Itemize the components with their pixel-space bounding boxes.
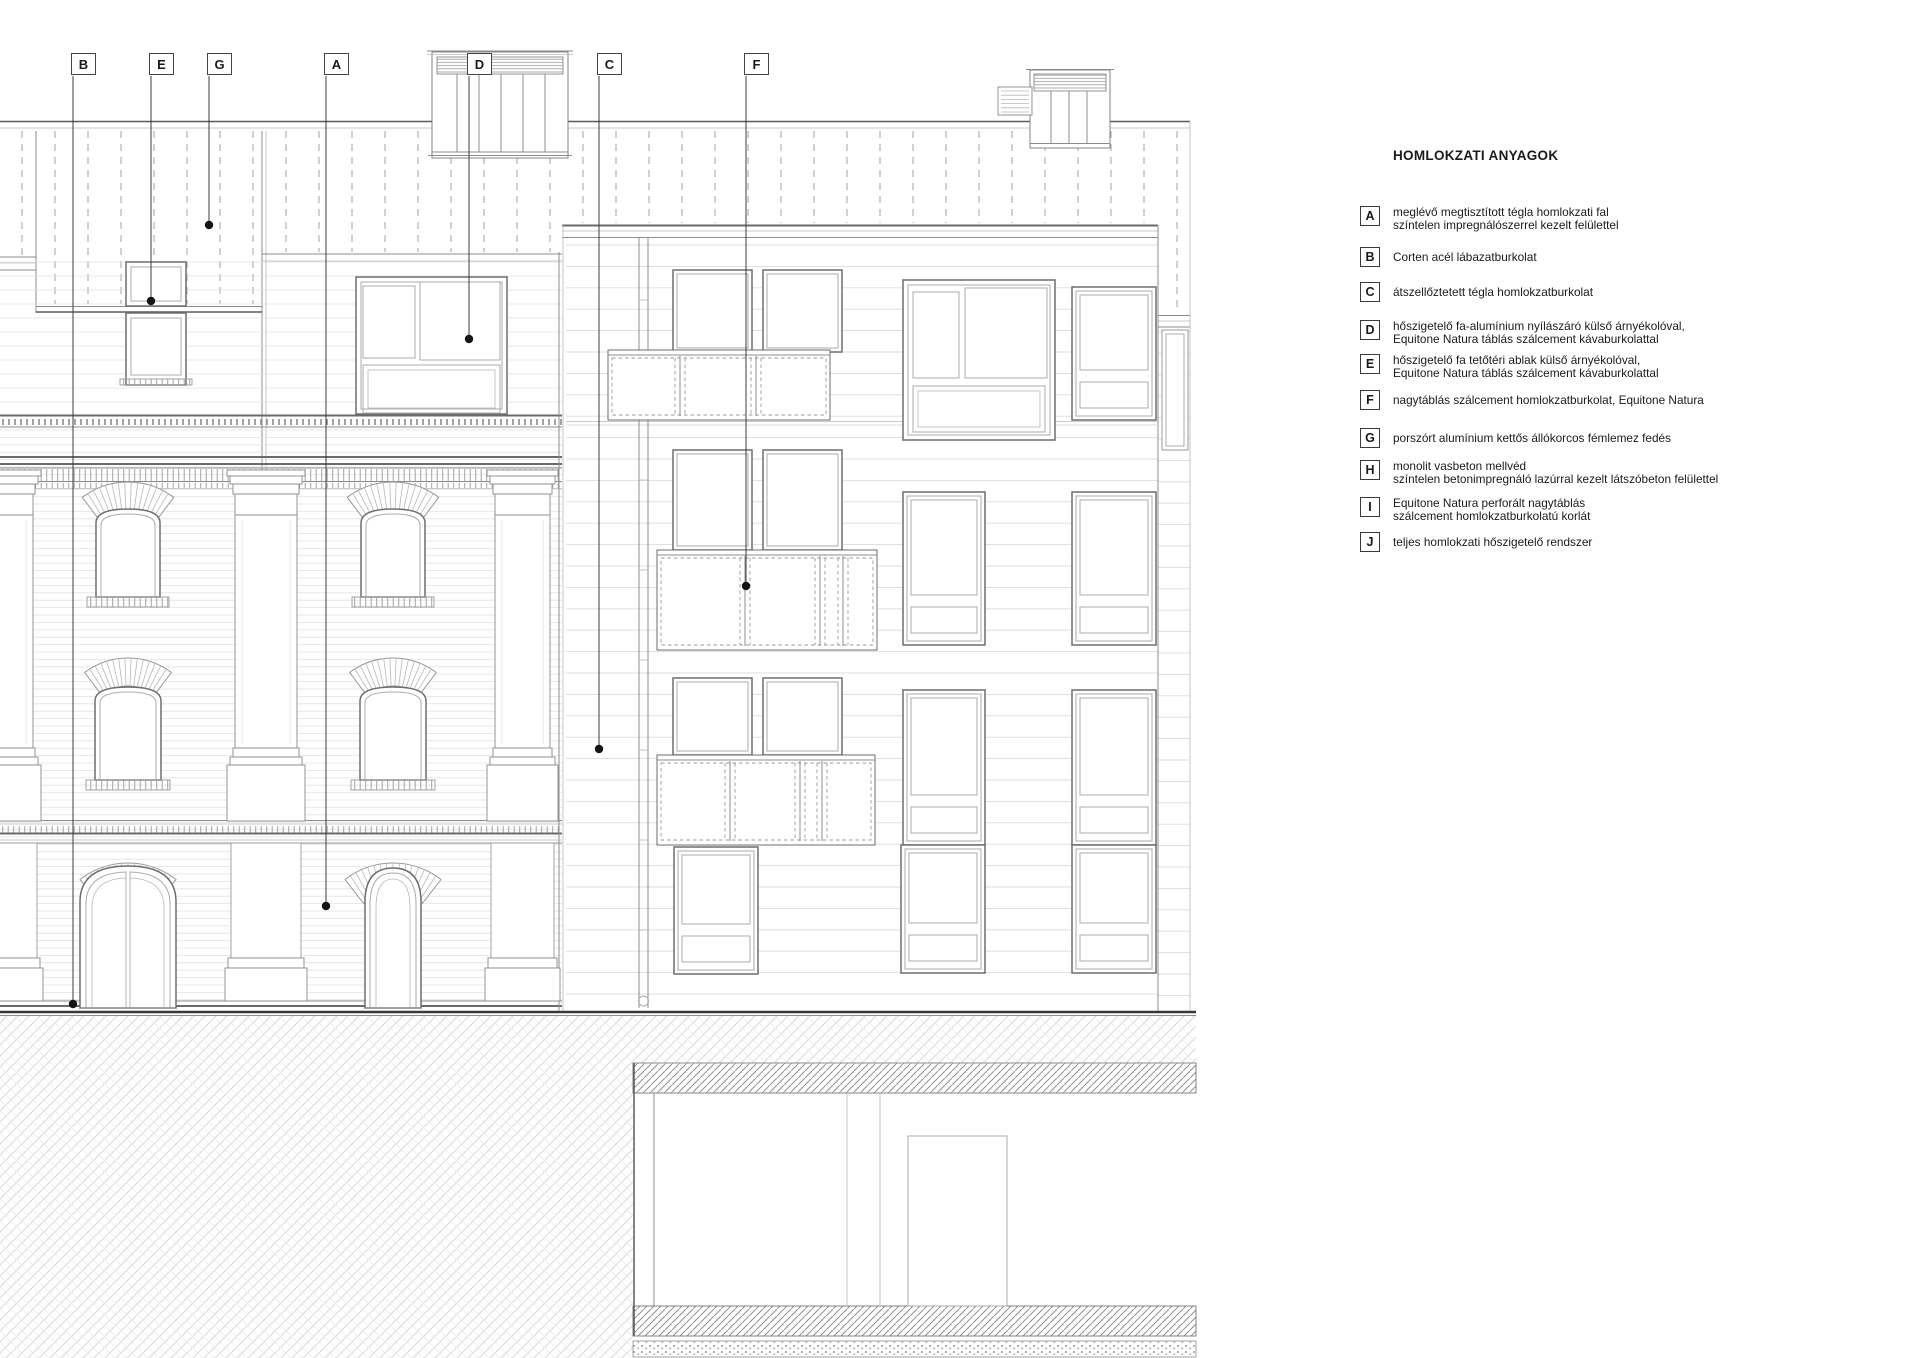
legend-item-text: monolit vasbeton mellvédszíntelen betoni… [1393,460,1813,486]
legend-key-letter: J [1367,536,1374,549]
callout-letter: C [605,58,614,71]
callout-marker: A [324,53,349,75]
legend-key-box: H [1360,460,1380,480]
legend-key-letter: H [1365,464,1374,477]
legend-key-letter: G [1365,432,1375,445]
legend-item-text: meglévő megtisztított tégla homlokzati f… [1393,206,1813,232]
callout-marker: F [744,53,769,75]
legend-key-letter: D [1365,324,1374,337]
legend-key-letter: C [1365,286,1374,299]
window-shuttered [356,277,507,414]
callout-letter: G [214,58,224,71]
callout-marker: B [71,53,96,75]
elevation-drawing [0,0,1920,1358]
legend-key-letter: F [1366,394,1374,407]
legend-key-box: D [1360,320,1380,340]
callout-letter: F [753,58,761,71]
legend-item-text: Corten acél lábazatburkolat [1393,251,1813,264]
legend-item-text: hőszigetelő fa-alumínium nyílászáró küls… [1393,320,1813,346]
legend-item-text: átszellőztetett tégla homlokzatburkolat [1393,286,1813,299]
legend-key-letter: E [1366,358,1374,371]
callout-marker: C [597,53,622,75]
dormer-right [1026,70,1114,149]
roof-window-stack [120,262,192,385]
callout-letter: B [79,58,88,71]
legend-key-box: E [1360,354,1380,374]
legend-key-box: F [1360,390,1380,410]
legend-key-letter: B [1365,251,1374,264]
basement-section [633,1063,1196,1358]
legend-title: HOMLOKZATI ANYAGOK [1393,148,1558,163]
legend-key-letter: I [1368,501,1371,514]
callout-marker: G [207,53,232,75]
legend-item-text: nagytáblás szálcement homlokzatburkolat,… [1393,394,1813,407]
legend-key-box: C [1360,282,1380,302]
legend-item-text: hőszigetelő fa tetőtéri ablak külső árny… [1393,354,1813,380]
callout-marker: E [149,53,174,75]
legend-key-box: G [1360,428,1380,448]
legend-key-box: I [1360,497,1380,517]
drawing-canvas: B E G A D C F HOMLOKZATI ANYAGOK A meglé… [0,0,1920,1358]
legend-item-text: Equitone Natura perforált nagytáblásszál… [1393,497,1813,523]
callout-marker: D [467,53,492,75]
callout-letter: A [332,58,341,71]
callout-letter: E [157,58,166,71]
roof-vent [998,87,1032,115]
legend-key-box: A [1360,206,1380,226]
callout-letter: D [475,58,484,71]
legend-item-text: porszórt alumínium kettős állókorcos fém… [1393,432,1813,445]
legend-key-box: J [1360,532,1380,552]
legend-item-text: teljes homlokzati hőszigetelő rendszer [1393,536,1813,549]
legend-key-box: B [1360,247,1380,267]
dormer-left [427,51,573,158]
legend-key-letter: A [1365,210,1374,223]
